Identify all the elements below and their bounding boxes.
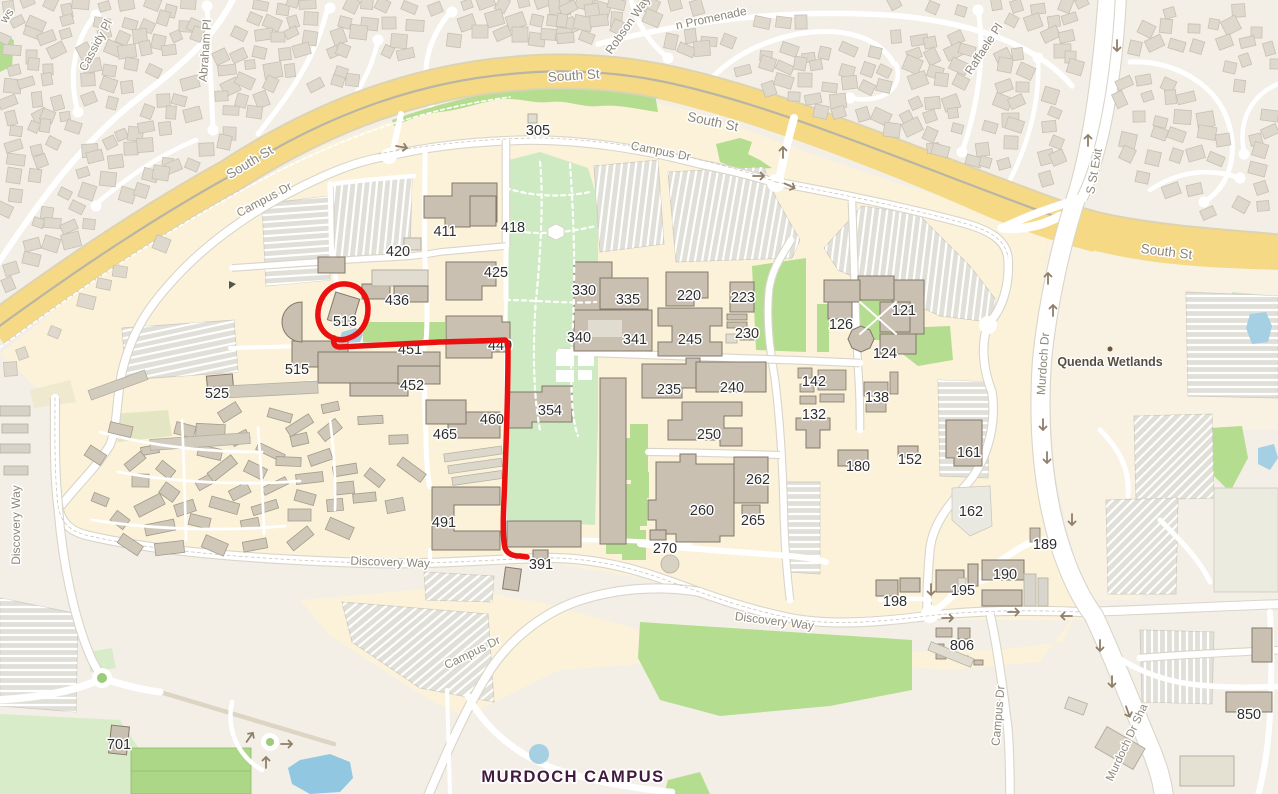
svg-text:491: 491 <box>432 515 456 531</box>
svg-text:220: 220 <box>677 288 701 304</box>
svg-text:190: 190 <box>993 567 1017 583</box>
svg-text:124: 124 <box>873 346 897 362</box>
svg-text:436: 436 <box>385 293 409 309</box>
svg-text:126: 126 <box>829 317 853 333</box>
svg-text:132: 132 <box>802 407 826 423</box>
svg-text:245: 245 <box>678 332 702 348</box>
svg-text:262: 262 <box>746 472 770 488</box>
svg-text:425: 425 <box>484 265 508 281</box>
svg-text:341: 341 <box>623 332 647 348</box>
svg-text:330: 330 <box>572 283 596 299</box>
svg-text:138: 138 <box>865 390 889 406</box>
svg-text:161: 161 <box>957 445 981 461</box>
svg-text:411: 411 <box>433 224 456 240</box>
svg-text:265: 265 <box>741 513 765 529</box>
svg-text:MURDOCH CAMPUS: MURDOCH CAMPUS <box>481 768 664 786</box>
svg-text:235: 235 <box>657 382 681 398</box>
svg-text:Quenda Wetlands: Quenda Wetlands <box>1057 355 1162 369</box>
svg-text:305: 305 <box>526 123 550 139</box>
svg-text:142: 142 <box>802 374 826 390</box>
svg-text:460: 460 <box>480 412 504 428</box>
svg-text:335: 335 <box>616 292 640 308</box>
svg-text:198: 198 <box>883 594 907 610</box>
svg-text:418: 418 <box>501 220 525 236</box>
svg-text:340: 340 <box>567 330 591 346</box>
svg-text:189: 189 <box>1033 537 1057 553</box>
svg-text:240: 240 <box>720 380 744 396</box>
svg-text:152: 152 <box>898 452 922 468</box>
svg-text:465: 465 <box>433 427 457 443</box>
svg-text:260: 260 <box>690 503 714 519</box>
svg-text:Discovery Way: Discovery Way <box>9 485 23 565</box>
svg-text:230: 230 <box>735 326 759 342</box>
svg-text:195: 195 <box>951 583 975 599</box>
svg-text:391: 391 <box>529 557 553 573</box>
svg-text:Discovery Way: Discovery Way <box>350 554 430 571</box>
svg-text:354: 354 <box>538 403 562 419</box>
svg-text:701: 701 <box>107 737 131 753</box>
svg-text:270: 270 <box>653 541 677 557</box>
svg-text:223: 223 <box>731 290 755 306</box>
svg-text:162: 162 <box>959 504 983 520</box>
svg-text:806: 806 <box>950 638 974 654</box>
svg-text:250: 250 <box>697 427 721 443</box>
svg-text:121: 121 <box>892 303 916 319</box>
svg-text:452: 452 <box>400 378 424 394</box>
svg-text:525: 525 <box>205 386 229 402</box>
svg-text:513: 513 <box>333 314 357 330</box>
svg-text:515: 515 <box>285 362 309 378</box>
svg-text:420: 420 <box>386 244 410 260</box>
svg-text:180: 180 <box>846 459 870 475</box>
svg-text:850: 850 <box>1237 707 1261 723</box>
